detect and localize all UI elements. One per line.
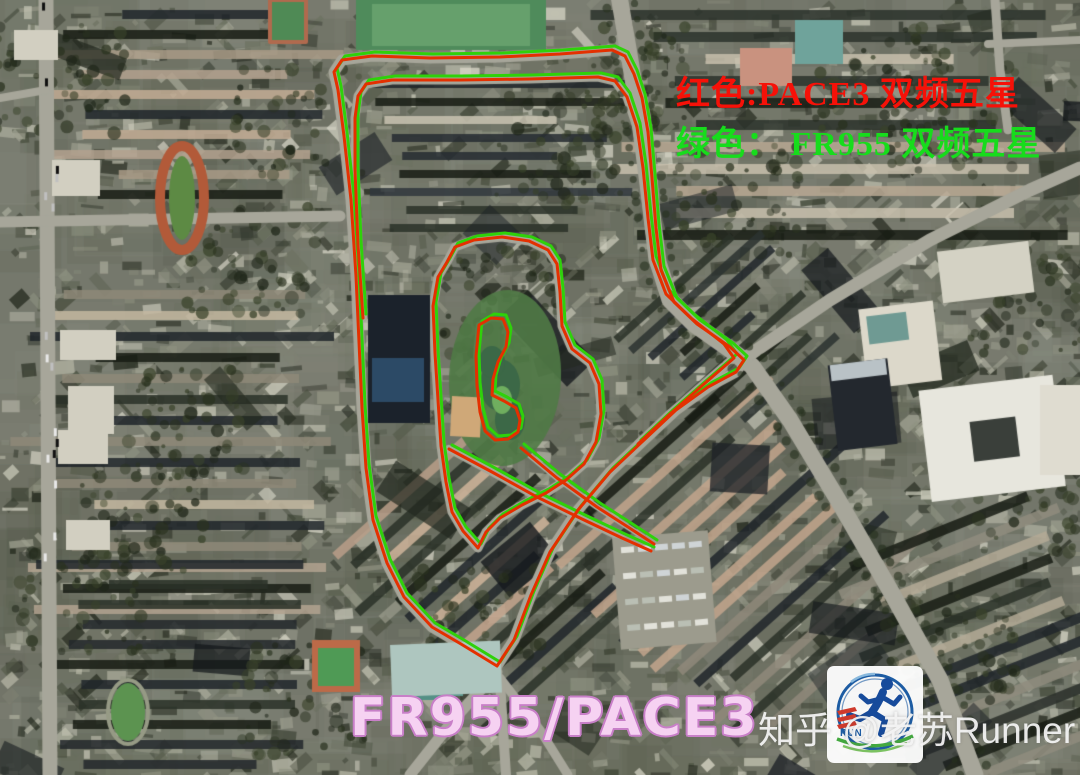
legend-green-fr955: 绿色： FR955 双频五星 (676, 120, 1041, 170)
zhihu-watermark: 知乎 @老苏Runner (758, 700, 1075, 754)
device-comparison-caption: FR955/PACE3 (350, 688, 759, 748)
satellite-map-stage: 红色:PACE3 双频五星 绿色： FR955 双频五星 FR955/PACE3… (0, 0, 1080, 775)
track-legend: 红色:PACE3 双频五星 绿色： FR955 双频五星 (676, 70, 1041, 170)
legend-red-pace3: 红色:PACE3 双频五星 (676, 70, 1041, 120)
